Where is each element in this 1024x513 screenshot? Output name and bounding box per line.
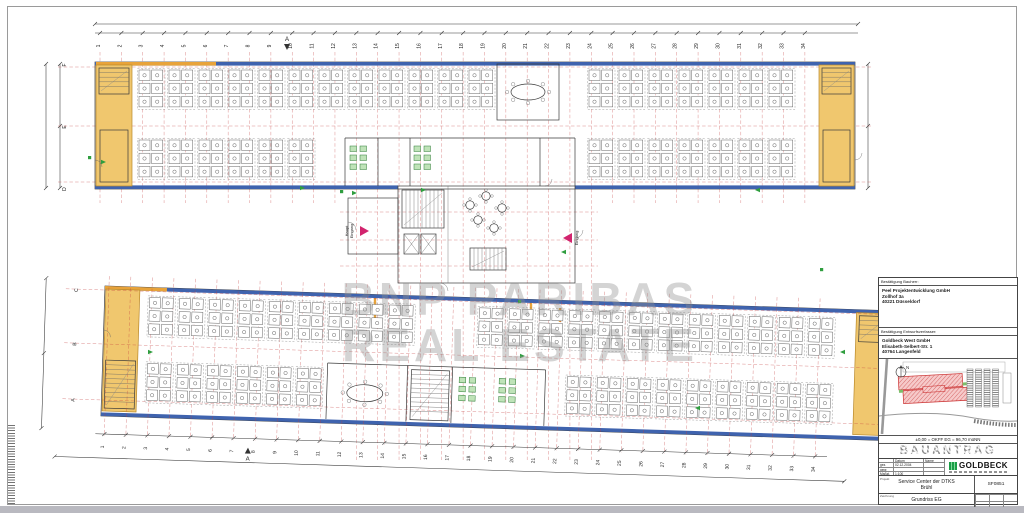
plan-text: 13 xyxy=(358,452,364,458)
plan-text: 2 xyxy=(121,446,127,449)
plan-text: 13 xyxy=(352,43,358,49)
revision-cell xyxy=(989,501,1003,508)
plan-text: 9 xyxy=(272,451,278,454)
plan-text: 34 xyxy=(801,43,807,49)
plan-text: 25 xyxy=(617,460,623,466)
entrance-markers: HauptEingangEingang xyxy=(344,224,579,246)
plan-text: 25 xyxy=(609,43,615,49)
plan-text: 27 xyxy=(651,43,657,49)
drawing-title-value: Grundriss EG xyxy=(911,497,941,503)
plan-text: 23 xyxy=(574,459,580,465)
plan-text: 17 xyxy=(444,455,450,461)
plan-text: 33 xyxy=(780,43,786,49)
plan-text: 20 xyxy=(502,43,508,49)
stamp-wrap: BAUANTRAG xyxy=(879,443,1017,459)
designer-header: Bestätigung Entwurfsverfasser: xyxy=(879,328,1017,336)
plan-text: 5 xyxy=(181,44,187,47)
plan-text: 19 xyxy=(480,43,486,49)
plan-text: 5 xyxy=(186,448,192,451)
plan-text: 34 xyxy=(811,466,817,472)
project-line2: Brühl xyxy=(879,485,974,491)
plan-text: 11 xyxy=(315,451,321,457)
company-name: GOLDBECK xyxy=(959,461,1008,470)
plan-text: Eingang xyxy=(574,231,579,246)
drawing-title-row: Zeichnung Grundriss EG xyxy=(879,493,1017,507)
plan-text: 24 xyxy=(587,43,593,49)
drawing-number-value: SF0851 xyxy=(988,482,1005,487)
plan-text: 6 xyxy=(203,44,209,47)
plan-text: 26 xyxy=(630,43,636,49)
plan-text: 18 xyxy=(466,455,472,461)
revision-cell xyxy=(975,501,989,508)
plan-text: A xyxy=(246,457,250,463)
meta-row: Datum Name gez. 02.12.2004 gepr. Maßst. … xyxy=(879,458,1017,476)
designer-address: Goldbeck West GmbH Elisabeth-Selbert-Str… xyxy=(879,336,1017,355)
plan-text: 16 xyxy=(423,454,429,460)
drawing-title-label: Zeichnung xyxy=(880,494,894,498)
plan-text: 17 xyxy=(438,43,444,49)
plan-text: 20 xyxy=(509,457,515,463)
plan-text: 18 xyxy=(459,43,465,49)
drawing-number: SF0851 xyxy=(975,476,1017,494)
plan-text: 15 xyxy=(401,453,407,459)
project-row: Projekt Service Center der DTKS Brühl SF… xyxy=(879,475,1017,494)
plan-text: Eingang xyxy=(349,224,354,239)
title-block: Bestätigung Bauherr: Peel Projektentwick… xyxy=(878,277,1018,505)
project-label: Projekt xyxy=(880,476,889,482)
plan-text: 3 xyxy=(139,44,145,47)
top-wing xyxy=(95,62,862,189)
plan-text: 22 xyxy=(545,43,551,49)
plan-text: 7 xyxy=(224,44,230,47)
plan-text: 8 xyxy=(251,450,257,453)
plan-text: A xyxy=(70,398,76,402)
revision-grid xyxy=(975,494,1017,507)
plan-text: B xyxy=(72,342,78,346)
plan-text: F xyxy=(62,63,68,66)
plan-text: 30 xyxy=(715,43,721,49)
plan-text: 33 xyxy=(789,466,795,472)
plan-text: 16 xyxy=(416,43,422,49)
bottom-wing: CBA1234567891011121314151617181920212223… xyxy=(39,274,907,485)
drawing-title: Zeichnung Grundriss EG xyxy=(879,494,975,507)
plan-text: 31 xyxy=(737,43,743,49)
plan-text: 19 xyxy=(488,456,494,462)
owner-address: Peel Projektentwicklung GmbH Zollhof 3a … xyxy=(879,286,1017,305)
plan-text: 14 xyxy=(374,43,380,49)
plan-text: 4 xyxy=(165,447,171,450)
plan-text: 1 xyxy=(100,445,106,448)
designer-section: Bestätigung Entwurfsverfasser: Goldbeck … xyxy=(879,328,1017,355)
floor-plan-drawing: 1234567891011121314151617181920212223242… xyxy=(0,0,1024,513)
plan-text: 15 xyxy=(395,43,401,49)
map-building-highlight xyxy=(898,373,967,404)
owner-section: Bestätigung Bauherr: Peel Projektentwick… xyxy=(879,278,1017,305)
plan-text: 11 xyxy=(310,43,316,48)
company-logo: GOLDBECK xyxy=(949,461,1008,470)
plan-text: 31 xyxy=(746,464,752,470)
plan-text: 2 xyxy=(117,44,123,47)
plan-text: A xyxy=(285,37,289,43)
designer-line: 40764 Langenfeld xyxy=(882,349,1017,355)
drawing-sheet: 1234567891011121314151617181920212223242… xyxy=(0,0,1024,513)
plan-text: 21 xyxy=(531,457,537,463)
plan-text: 10 xyxy=(288,43,294,49)
plan-text: E xyxy=(62,125,68,129)
plan-text: 28 xyxy=(673,43,679,49)
plan-text: 3 xyxy=(143,447,149,450)
site-plan-map: N xyxy=(879,359,1017,434)
sheet-bottom-shadow xyxy=(0,506,1024,513)
plan-text: 27 xyxy=(660,462,666,468)
meta-table: Datum Name gez. 02.12.2004 gepr. Maßst. … xyxy=(879,459,945,476)
owner-line: 40221 Düsseldorf xyxy=(882,299,1017,305)
bauantrag-stamp: BAUANTRAG xyxy=(879,444,1017,459)
owner-header: Bestätigung Bauherr: xyxy=(879,278,1017,286)
plan-text: 4 xyxy=(160,44,166,47)
goldbeck-logo-icon xyxy=(949,462,957,470)
plan-text: 29 xyxy=(703,463,709,469)
plan-text: 30 xyxy=(724,464,730,470)
plan-text: 24 xyxy=(595,459,601,465)
plan-text: 29 xyxy=(694,43,700,49)
revision-cell xyxy=(1003,501,1017,508)
plan-text: 12 xyxy=(337,451,343,457)
plan-text: 21 xyxy=(523,43,529,49)
plot-stamp-text xyxy=(8,424,15,504)
plan-text: 22 xyxy=(552,458,558,464)
plan-text: 32 xyxy=(768,465,774,471)
plan-text: 9 xyxy=(267,44,273,47)
plan-text: 10 xyxy=(294,450,300,456)
plan-text: 14 xyxy=(380,453,386,459)
plan-text: 32 xyxy=(758,43,764,49)
plan-text: 12 xyxy=(331,43,337,49)
plan-text: C xyxy=(74,288,80,292)
north-label: N xyxy=(906,365,909,370)
plan-text: 8 xyxy=(246,44,252,47)
plan-text: 26 xyxy=(638,461,644,467)
plan-text: 7 xyxy=(229,449,235,452)
plan-text: 23 xyxy=(566,43,572,49)
plan-text: D xyxy=(62,187,68,191)
plan-text: 28 xyxy=(681,462,687,468)
plan-text: 6 xyxy=(208,449,214,452)
logo-zone: GOLDBECK xyxy=(945,459,1017,476)
plan-text: 1 xyxy=(96,44,102,47)
company-address-fineprint xyxy=(949,471,1009,473)
project-name: Projekt Service Center der DTKS Brühl xyxy=(879,476,975,494)
